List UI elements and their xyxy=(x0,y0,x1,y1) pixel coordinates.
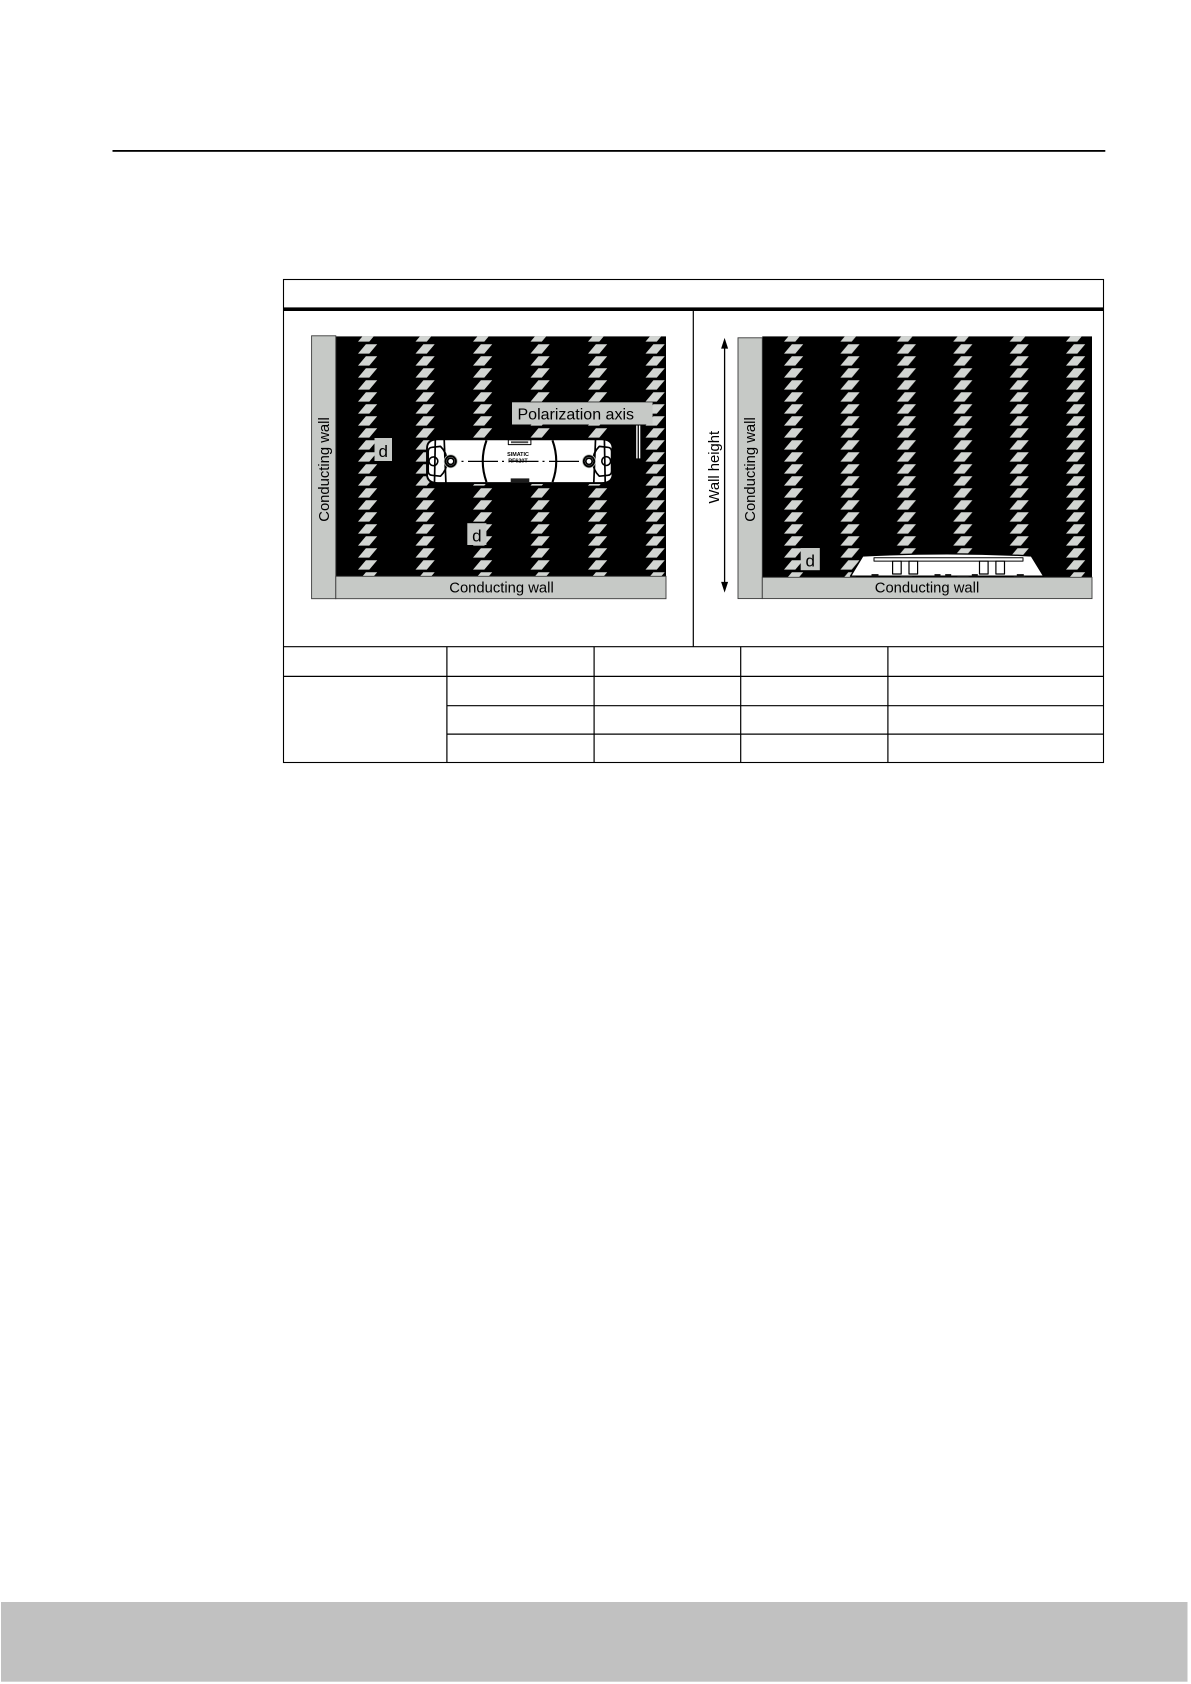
svg-text:Conducting wall: Conducting wall xyxy=(743,417,759,521)
svg-text:d: d xyxy=(805,551,814,570)
svg-text:Wall height: Wall height xyxy=(707,431,723,504)
svg-text:Conducting wall: Conducting wall xyxy=(449,580,553,596)
svg-text:Conducting wall: Conducting wall xyxy=(875,580,979,596)
svg-text:d: d xyxy=(378,442,387,461)
svg-text:Polarization axis: Polarization axis xyxy=(518,406,635,423)
svg-text:RF620T: RF620T xyxy=(508,458,528,464)
svg-text:d: d xyxy=(472,526,481,545)
svg-text:Conducting wall: Conducting wall xyxy=(317,417,333,521)
svg-text:SIMATIC: SIMATIC xyxy=(507,452,529,458)
